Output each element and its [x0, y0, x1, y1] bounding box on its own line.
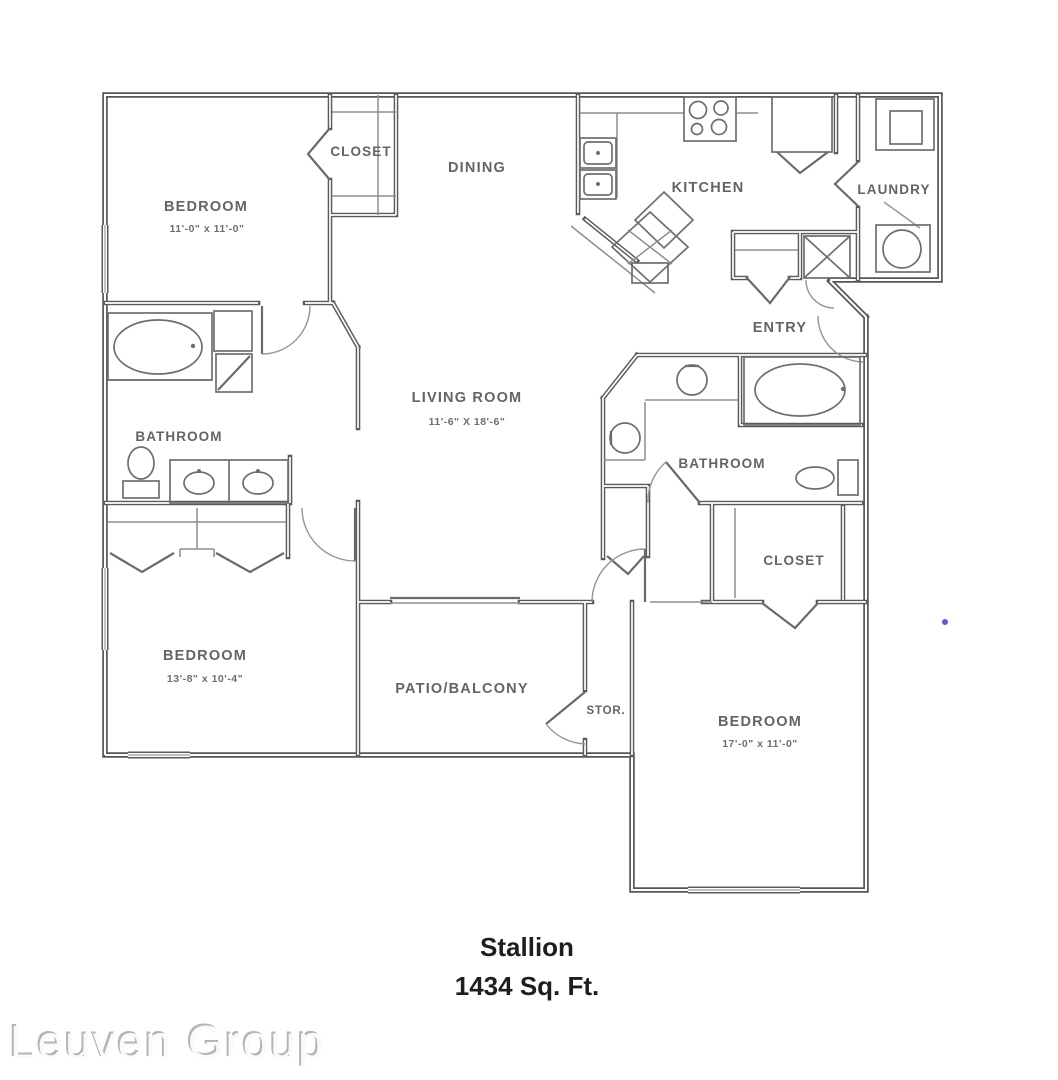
room-label-patio-balcony: PATIO/BALCONY [395, 681, 528, 697]
room-dims-bedroom-bottom-left: 13'-8" x 10'-4" [167, 673, 243, 685]
room-label-dining: DINING [448, 160, 506, 176]
plan-name-title: Stallion [480, 932, 574, 962]
watermark-text: Leuven Group [10, 1016, 326, 1068]
water-heater-icon [876, 225, 930, 272]
watermark: Leuven Group Leuven Group [8, 1014, 326, 1068]
hvac-closet-icon [804, 236, 850, 278]
stray-blue-dot [942, 619, 948, 625]
bathtub-right-icon [744, 357, 860, 425]
floor-plan-page: CLOSET BEDROOM 11'-0" x 11'-0" DINING KI… [0, 0, 1058, 1080]
room-label-closet-top-left: CLOSET [330, 144, 391, 159]
stove-icon [684, 97, 736, 141]
plan-area-title: 1434 Sq. Ft. [455, 971, 600, 1001]
room-label-bathroom-left: BATHROOM [135, 429, 222, 444]
room-dims-bedroom-bottom-right: 17'-0" x 11'-0" [722, 738, 798, 750]
room-label-laundry: LAUNDRY [857, 182, 930, 197]
sink-right-side-icon [610, 423, 640, 453]
room-label-storage: STOR. [587, 705, 626, 717]
floor-plan-drawing: CLOSET BEDROOM 11'-0" x 11'-0" DINING KI… [0, 0, 1058, 1080]
room-dims-living-room: 11'-6" X 18'-6" [429, 416, 506, 428]
double-vanity-icon [170, 460, 288, 503]
room-dims-bedroom-top-left: 11'-0" x 11'-0" [170, 223, 245, 235]
toilet-left-icon [123, 447, 159, 498]
room-label-bedroom-bottom-right: BEDROOM [718, 714, 802, 730]
room-label-kitchen: KITCHEN [672, 180, 745, 196]
room-label-bedroom-bottom-left: BEDROOM [163, 648, 247, 664]
room-label-closet-right: CLOSET [763, 553, 824, 568]
toilet-right-icon [796, 460, 858, 495]
linen-closet-icon [214, 311, 252, 392]
room-label-living-room: LIVING ROOM [412, 390, 523, 406]
kitchen-sink-icon [580, 138, 616, 199]
room-label-bedroom-top-left: BEDROOM [164, 199, 248, 215]
room-label-bathroom-right: BATHROOM [678, 456, 765, 471]
washer-icon [876, 99, 934, 150]
sink-right-top-icon [677, 365, 707, 395]
refrigerator-icon [772, 97, 832, 152]
room-label-entry: ENTRY [753, 320, 808, 336]
window-symbols [105, 225, 800, 890]
bathtub-left-icon [108, 313, 212, 380]
